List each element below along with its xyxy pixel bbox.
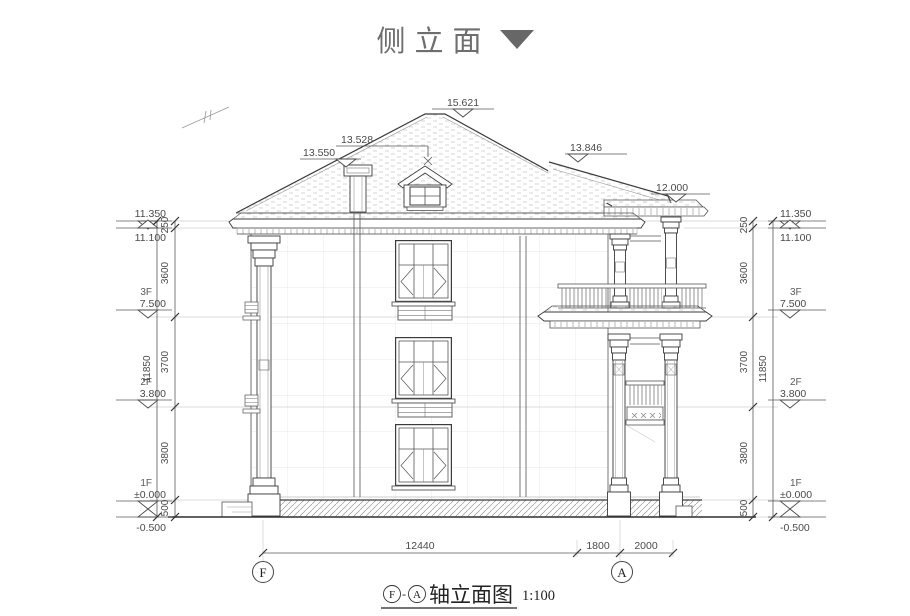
bracket-3f [243, 302, 260, 320]
dim-right-500: 500 [739, 499, 750, 516]
dim-bottom-2000: 2000 [634, 540, 658, 552]
balcony-railing-2f [626, 338, 664, 442]
dim-right-250: 250 [739, 216, 750, 233]
floor-label-right-1f: 1F [790, 478, 802, 489]
dim-left-3600: 3600 [160, 261, 171, 284]
marker-right-3f: 7.500 [780, 298, 806, 310]
drawing-page: 侧立面 [0, 0, 910, 616]
dim-left-500: 500 [160, 499, 171, 516]
marker-porch-roof: 12.000 [656, 182, 688, 194]
dim-right-3600: 3600 [739, 261, 750, 284]
plinth-hatch [251, 500, 702, 517]
floor-label-left-1f: 1F [140, 478, 152, 489]
marker-right-ground: -0.500 [780, 522, 810, 534]
drawing-caption: F - A 轴立面图 1:100 [381, 583, 555, 608]
level-lines [150, 221, 778, 517]
floor-label-right-3f: 3F [790, 287, 802, 298]
dim-bottom-12440: 12440 [405, 540, 434, 552]
window-1f [392, 425, 455, 490]
section-header: 侧立面 [0, 18, 910, 60]
dim-right-3800: 3800 [739, 441, 750, 464]
dim-left-3700: 3700 [160, 350, 171, 373]
dimension-chain-bottom: 12440 1800 2000 [259, 520, 677, 561]
dim-left-overall: 11850 [142, 355, 153, 383]
marker-ridge: 15.621 [447, 97, 479, 109]
dim-bottom-1800: 1800 [586, 540, 610, 552]
marker-left-3f: 7.500 [140, 298, 166, 310]
axis-bubbles: F A [253, 562, 633, 583]
dim-left-250: 250 [160, 216, 171, 233]
caption-axis-a: A [413, 589, 421, 601]
marker-chimney: 13.550 [303, 147, 335, 159]
caption-scale: 1:100 [522, 588, 555, 604]
dimension-chain-left: 250 3600 3700 3800 500 11850 [142, 216, 179, 521]
louver-3f [398, 306, 452, 320]
marker-dormer: 13.528 [341, 134, 373, 146]
marker-right-eave: 11.100 [780, 232, 811, 244]
porch-canopy [538, 306, 712, 328]
entry-steps [222, 502, 252, 517]
main-cornice [229, 213, 645, 234]
window-2f [392, 338, 455, 403]
floor-label-right-2f: 2F [790, 377, 802, 388]
caption-separator: - [402, 587, 406, 601]
elevation-drawing: 15.621 13.550 13.528 13.846 12.000 11.35… [0, 0, 910, 616]
window-3f [392, 241, 455, 306]
dim-right-overall: 11850 [758, 355, 769, 383]
louver-2f [398, 403, 452, 417]
floor-label-left-3f: 3F [140, 287, 152, 298]
marker-wing-roof: 13.846 [570, 142, 602, 154]
dim-right-3700: 3700 [739, 350, 750, 373]
marker-right-1f: ±0.000 [780, 489, 812, 501]
marker-left-ground: -0.500 [136, 522, 166, 534]
balcony-railing-3f [558, 284, 706, 308]
slope-indicator [182, 107, 229, 128]
porch-step [676, 506, 692, 517]
axis-bubble-f: F [259, 565, 266, 580]
plinth [248, 497, 702, 517]
marker-right-2f: 3.800 [780, 388, 806, 400]
collapse-triangle-icon[interactable] [500, 30, 534, 49]
caption-text: 轴立面图 [429, 583, 513, 607]
marker-right-parapet: 11.350 [780, 208, 811, 220]
wing-roof [545, 162, 671, 203]
dim-left-3800: 3800 [160, 441, 171, 464]
bracket-2f [243, 395, 260, 413]
elevation-markers-right: 11.350 11.100 3F 7.500 2F 3.800 1F ±0.00… [768, 208, 826, 534]
dimension-chain-right: 250 3600 3700 3800 500 11850 [739, 216, 777, 521]
marker-left-2f: 3.800 [140, 388, 166, 400]
marker-left-1f: ±0.000 [134, 489, 166, 501]
caption-axis-f: F [389, 589, 395, 601]
page-title: 侧立面 [376, 18, 490, 60]
axis-bubble-a: A [617, 565, 627, 580]
